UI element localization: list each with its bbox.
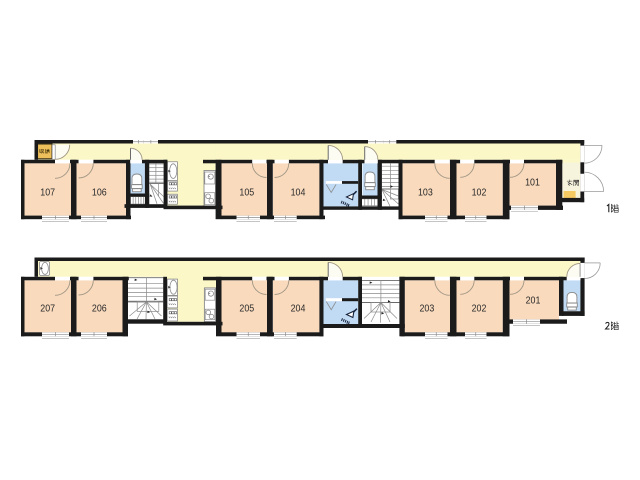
svg-text:103: 103 bbox=[418, 187, 433, 199]
svg-text:102: 102 bbox=[472, 187, 487, 199]
svg-text:207: 207 bbox=[40, 303, 55, 315]
svg-text:104: 104 bbox=[291, 187, 306, 199]
svg-text:203: 203 bbox=[420, 303, 435, 315]
svg-text:101: 101 bbox=[525, 177, 540, 189]
svg-text:105: 105 bbox=[239, 187, 254, 199]
svg-text:204: 204 bbox=[291, 303, 306, 315]
svg-text:106: 106 bbox=[92, 187, 107, 199]
svg-text:206: 206 bbox=[92, 303, 107, 315]
svg-text:205: 205 bbox=[239, 303, 254, 315]
svg-text:107: 107 bbox=[40, 187, 55, 199]
svg-text:201: 201 bbox=[526, 295, 541, 307]
svg-text:202: 202 bbox=[472, 303, 487, 315]
